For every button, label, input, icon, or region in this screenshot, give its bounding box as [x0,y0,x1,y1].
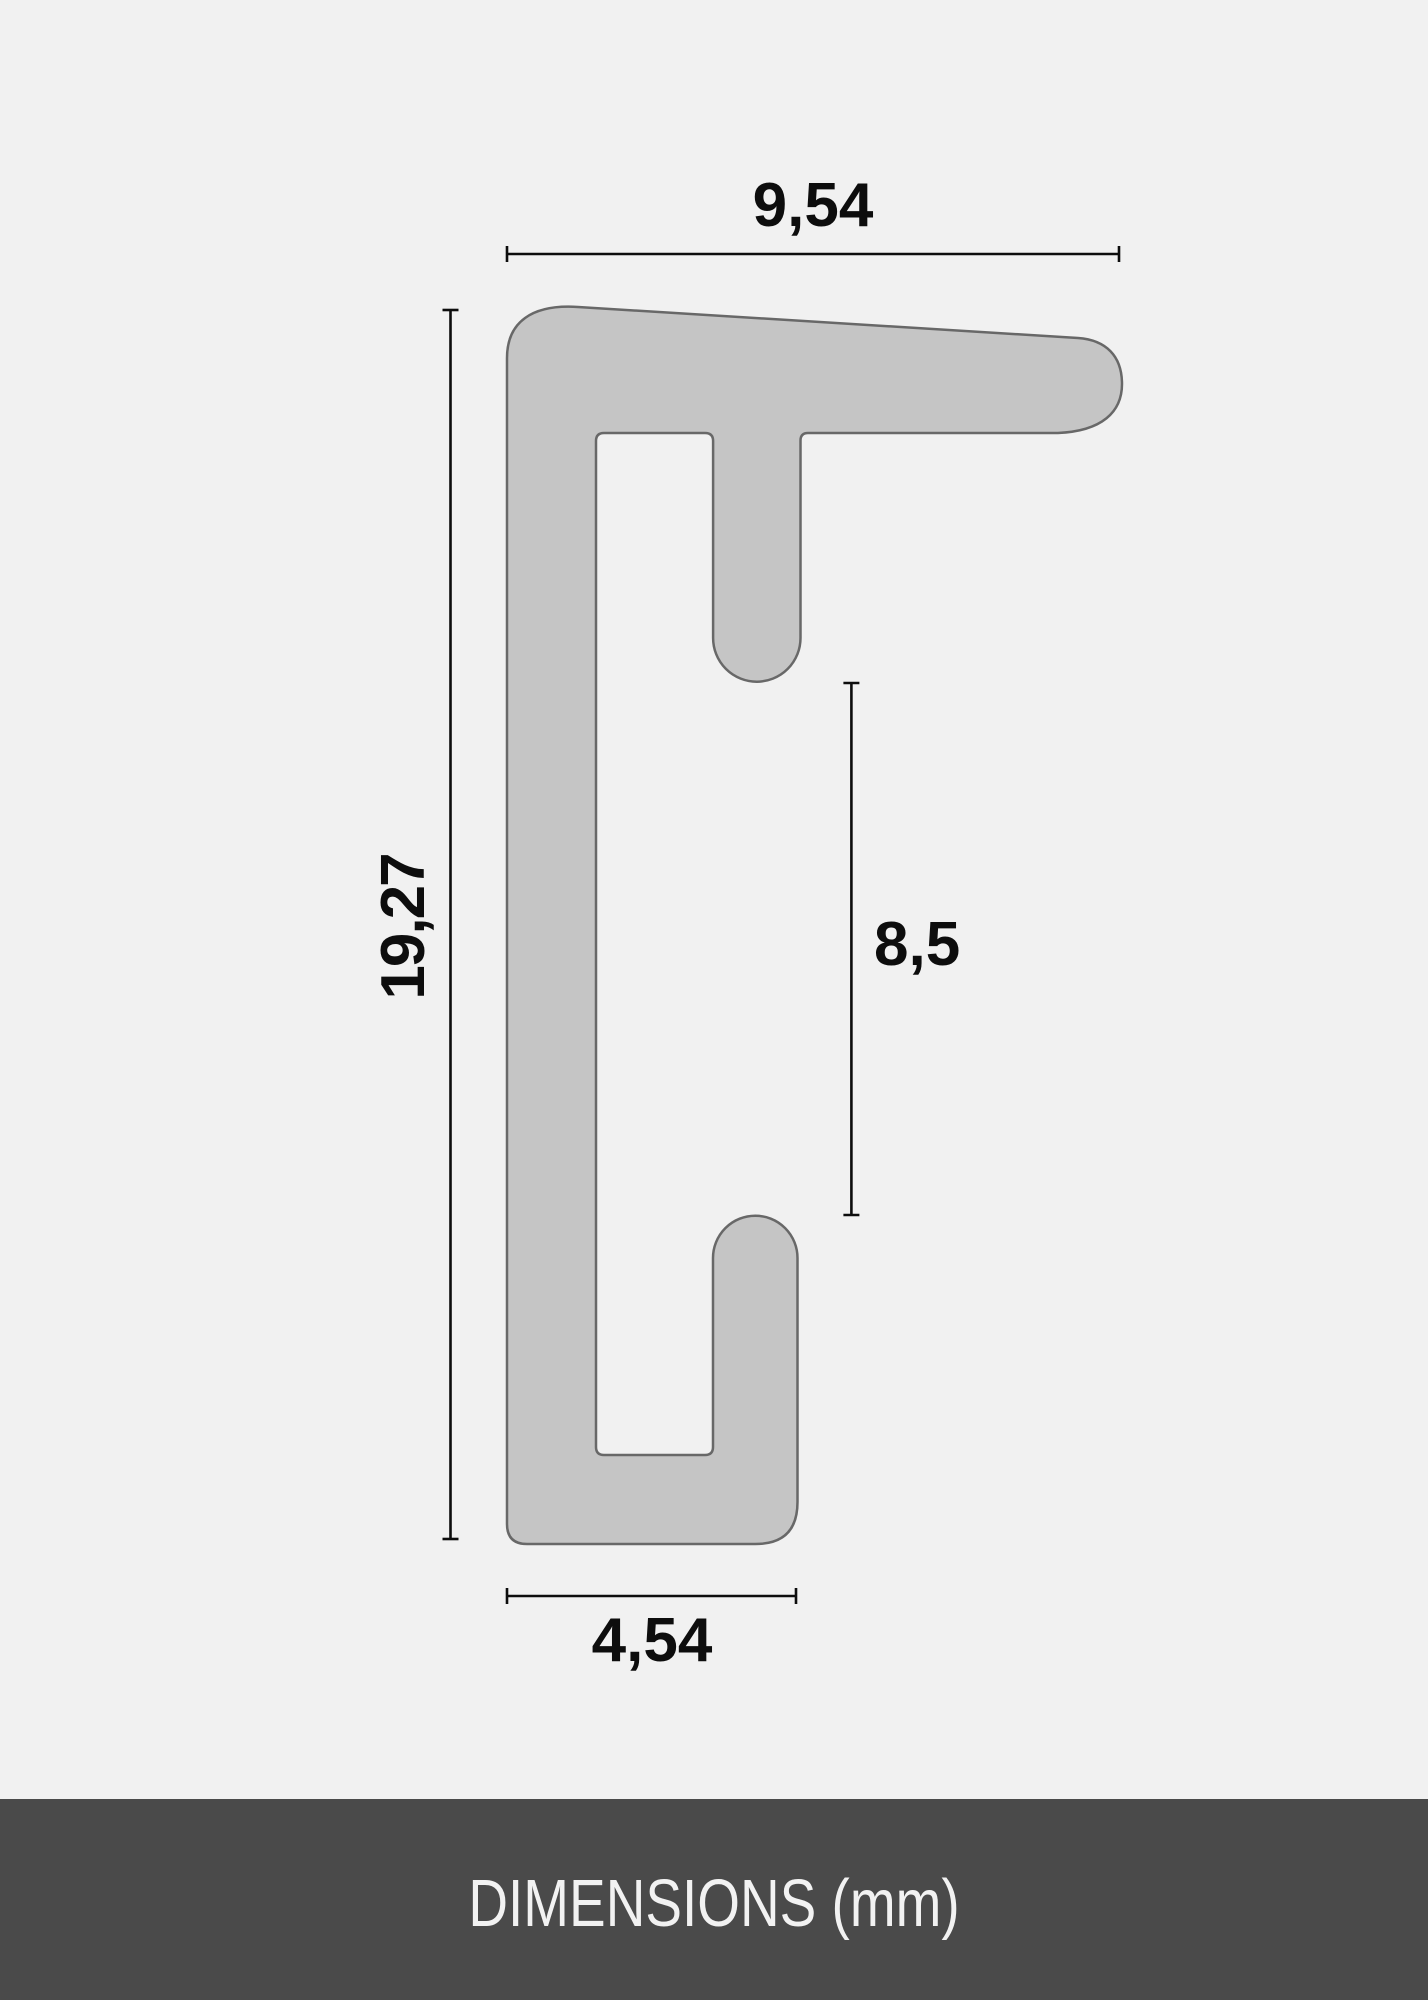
svg-text:9,54: 9,54 [753,171,874,240]
svg-text:DIMENSIONS (mm): DIMENSIONS (mm) [468,1866,959,1940]
svg-text:19,27: 19,27 [369,854,438,999]
svg-text:8,5: 8,5 [874,910,960,979]
svg-text:4,54: 4,54 [592,1606,713,1675]
